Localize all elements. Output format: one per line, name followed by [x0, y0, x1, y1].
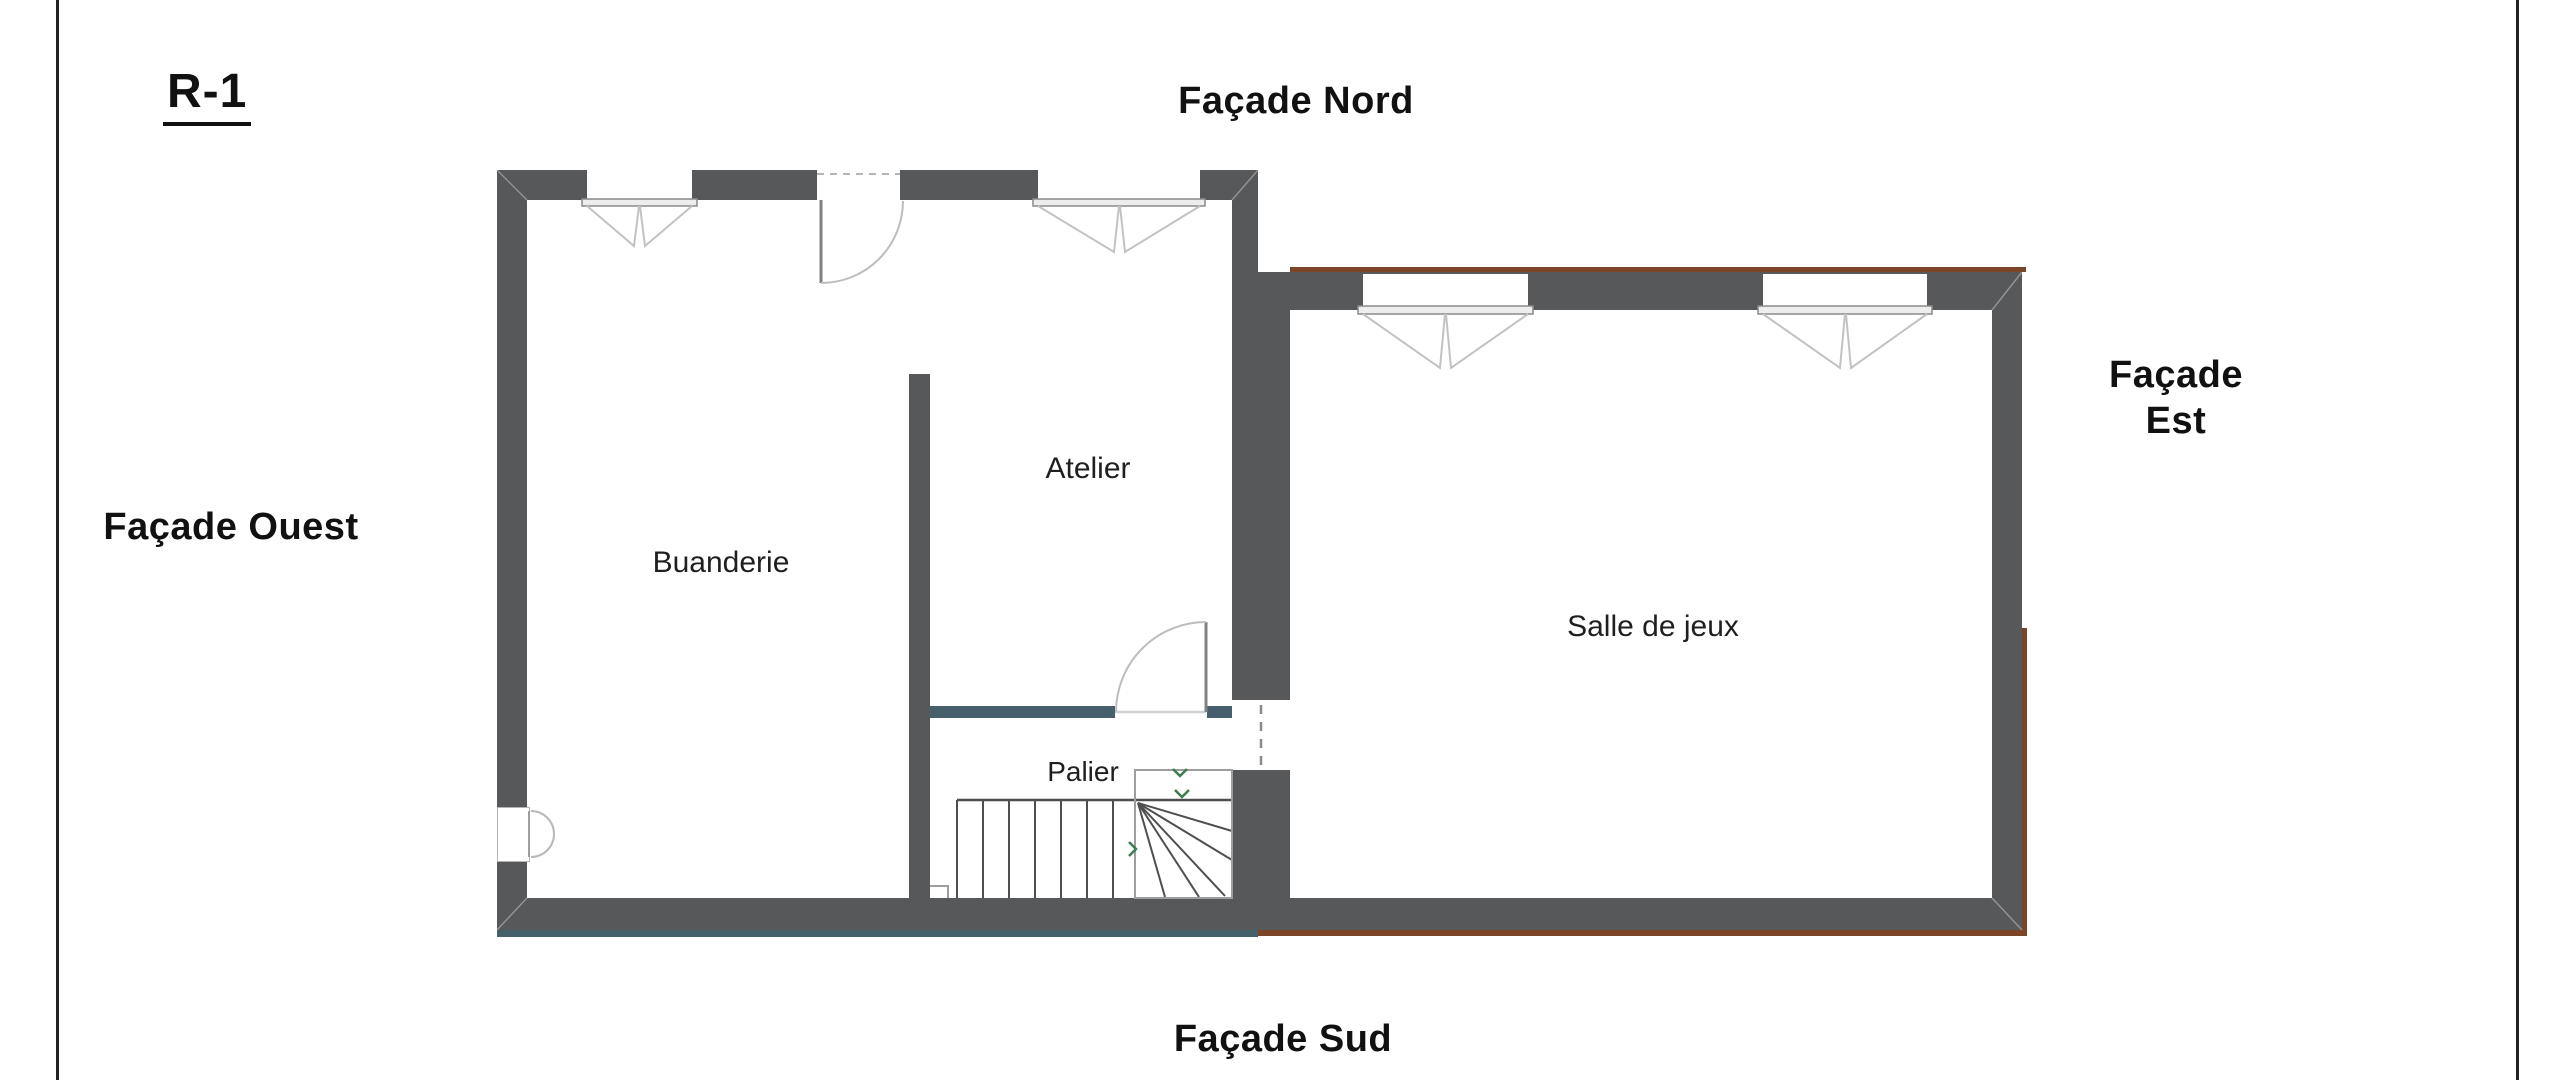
winder-tread-line — [1138, 803, 1225, 896]
door-swing-arc — [821, 201, 903, 283]
south-edge-brown-strip — [1258, 930, 2027, 936]
door-swing-arc — [1116, 622, 1206, 712]
facade-est-line2: Est — [2026, 398, 2326, 444]
niche-swing-arc — [531, 811, 554, 857]
winder-tread-line — [1138, 803, 1232, 831]
winder-tread-line — [1138, 803, 1232, 860]
door-opening-north — [817, 170, 900, 200]
window-sill — [582, 199, 697, 206]
winder-tread-line — [1138, 803, 1165, 897]
casement-triangle — [1038, 206, 1119, 252]
page-border-right — [2516, 0, 2519, 1080]
room-label-atelier: Atelier — [963, 452, 1213, 486]
casement-triangle — [587, 206, 639, 246]
interior-wall-salle-lower — [1232, 770, 1290, 898]
casement-triangle — [1846, 314, 1927, 368]
window-sill — [1033, 199, 1205, 206]
window-opening-buanderie — [587, 170, 692, 200]
window-niche-west-wall — [497, 807, 530, 862]
casement-triangle — [1446, 314, 1528, 368]
east-wall — [1992, 272, 2022, 930]
window-opening-salle-east — [1763, 274, 1927, 308]
facade-nord-label: Façade Nord — [1096, 80, 1496, 123]
room-label-buanderie: Buanderie — [571, 546, 871, 580]
east-edge-brown-strip — [2022, 628, 2027, 936]
door-opening-atelier-palier — [1115, 706, 1207, 718]
winder-tread-line — [1138, 803, 1199, 897]
stair-first-step — [930, 886, 948, 898]
casement-triangle — [1363, 314, 1445, 368]
east-step-wall — [1232, 200, 1258, 274]
partition-wall-buanderie-atelier — [909, 374, 930, 898]
casement-triangle — [1763, 314, 1845, 368]
north-edge-brown-strip — [1290, 267, 2026, 272]
casement-triangle — [640, 206, 692, 246]
room-label-salle-de-jeux: Salle de jeux — [1503, 610, 1803, 644]
facade-est-line1: Façade — [2026, 352, 2326, 398]
stair-winder-box — [1135, 770, 1232, 898]
south-edge-slate-strip — [497, 930, 1258, 937]
room-label-palier: Palier — [983, 756, 1183, 788]
staircase — [957, 800, 1232, 898]
south-wall — [497, 898, 2022, 930]
window-opening-atelier — [1038, 170, 1200, 200]
interior-wall-salle-upper — [1232, 310, 1290, 700]
floor-plan-page: R-1 Façade Nord Façade Ouest Façade Est … — [0, 0, 2554, 1080]
facade-est-label: Façade Est — [2026, 352, 2326, 444]
door-atelier-palier — [1115, 622, 1206, 712]
casement-triangle — [1120, 206, 1200, 252]
west-niche-window-symbol — [529, 811, 554, 857]
window-opening-salle-west — [1363, 274, 1528, 308]
floor-level-title: R-1 — [163, 64, 251, 126]
facade-ouest-label: Façade Ouest — [31, 506, 431, 549]
green-arrow-icon — [1175, 790, 1189, 797]
green-arrow-icon — [1129, 842, 1136, 856]
facade-sud-label: Façade Sud — [1083, 1018, 1483, 1061]
